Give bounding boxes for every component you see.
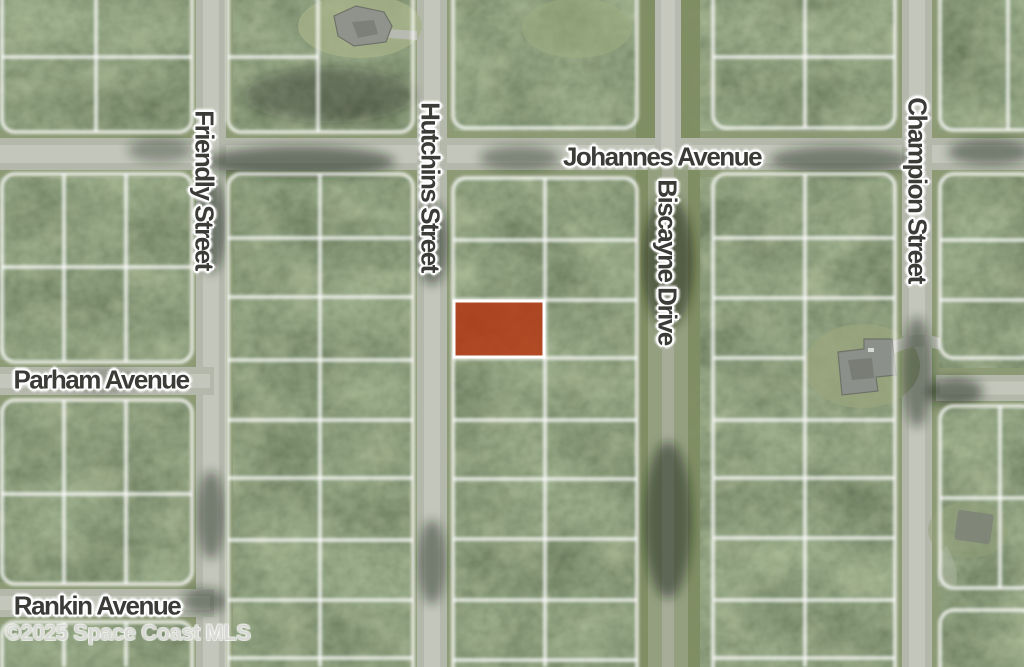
copyright-watermark: ©2025 Space Coast MLS — [5, 620, 250, 646]
street-label-biscayne-drive: Biscayne Drive — [652, 179, 683, 344]
street-label-parham-avenue: Parham Avenue — [13, 365, 188, 396]
street-label-friendly-street: Friendly Street — [189, 110, 220, 270]
street-label-hutchins-street: Hutchins Street — [415, 102, 446, 272]
street-label-champion-street: Champion Street — [902, 97, 933, 283]
highlighted-parcel — [454, 301, 544, 357]
street-label-johannes-avenue: Johannes Avenue — [563, 142, 761, 173]
mls-map-view[interactable]: Johannes Avenue Friendly Street Hutchins… — [0, 0, 1024, 667]
street-label-rankin-avenue: Rankin Avenue — [14, 591, 180, 622]
house-roof — [954, 510, 994, 545]
satellite-imagery — [0, 0, 1024, 667]
